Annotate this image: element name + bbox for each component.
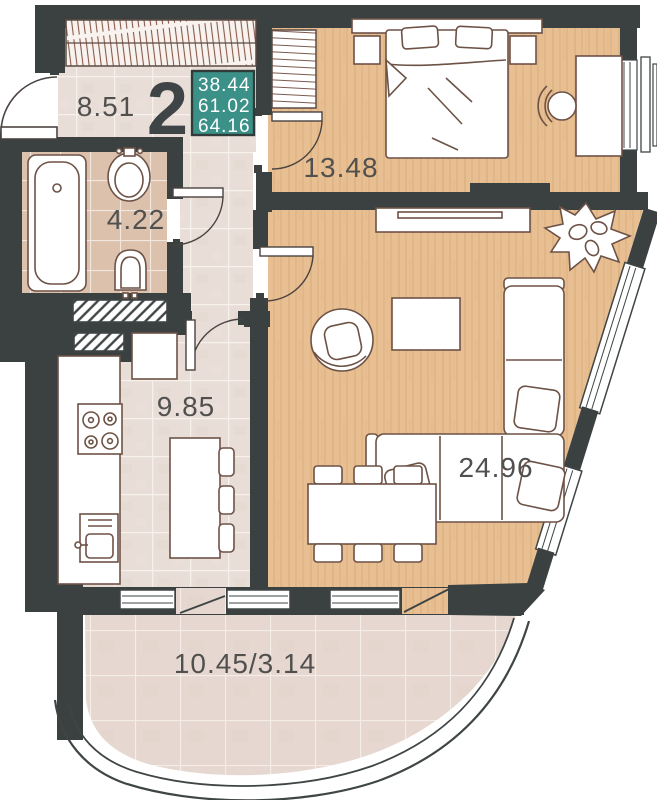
pillow — [455, 26, 492, 49]
total-area-value: 64.16 — [198, 116, 251, 137]
rooms-count-label: 2 — [147, 67, 188, 150]
wall-kitchen-living-divider — [250, 298, 268, 612]
bar-stool — [219, 524, 234, 552]
bathtub-drain — [53, 184, 61, 192]
bedroom-area-label: 13.48 — [303, 152, 378, 183]
dining-table — [308, 484, 436, 544]
wall-divider-step — [470, 183, 550, 210]
nightstand-right — [510, 36, 536, 64]
bed — [386, 26, 508, 158]
bedroom-wardrobe — [272, 30, 316, 108]
desk — [576, 56, 622, 156]
balcony-floor — [85, 615, 516, 775]
bar-stool — [219, 448, 234, 476]
floor-plan-page: 8.51 4.22 9.85 13.48 24.96 10.45/3.14 2 … — [0, 0, 657, 800]
bathtub — [28, 155, 86, 291]
dining-chair — [354, 466, 382, 484]
entrance-door — [1, 77, 57, 139]
kitchen-area-label: 9.85 — [157, 391, 216, 422]
wall-balcony-left — [57, 558, 83, 740]
area-summary-badge: 38.44 61.02 64.16 — [192, 71, 254, 137]
kitchen-island — [170, 438, 234, 558]
stove — [78, 404, 122, 454]
hallway-wardrobe — [66, 20, 256, 66]
dining-chair — [354, 544, 382, 562]
kitchen-window-2 — [227, 590, 290, 609]
dining-chair — [314, 544, 342, 562]
wall-corner-entry — [35, 5, 65, 73]
balcony-area-label: 10.45/3.14 — [174, 648, 316, 679]
hallway-area-label: 8.51 — [77, 91, 136, 122]
wall-bedroom-left-upper — [256, 18, 272, 115]
dining-set — [308, 466, 436, 562]
dining-chair — [314, 466, 342, 484]
tv-console — [376, 208, 530, 232]
dining-chair — [394, 544, 422, 562]
wall-bathroom-right-lower — [167, 242, 183, 295]
ventilation-duct-2 — [74, 333, 124, 351]
floor-plan: 8.51 4.22 9.85 13.48 24.96 10.45/3.14 2 … — [0, 0, 657, 800]
wall-kitchen-outer — [25, 350, 58, 612]
bedroom-window — [618, 57, 657, 152]
fridge — [132, 333, 177, 379]
ventilation-duct-1 — [73, 300, 167, 322]
tv — [398, 212, 502, 218]
door-frame-tick — [238, 311, 250, 325]
sofa-cushion — [513, 385, 560, 432]
door-frame-tick — [254, 165, 262, 173]
kitchen-balcony-doorway — [176, 588, 226, 614]
armchair — [311, 309, 373, 371]
door-frame-tick — [256, 293, 264, 301]
living-window — [330, 590, 400, 609]
kitchen-sink — [75, 514, 118, 562]
bar-stool — [219, 486, 234, 514]
coffee-table — [392, 298, 460, 350]
toilet — [115, 250, 146, 298]
kitchen-window-1 — [120, 590, 175, 609]
apartment-area-value: 61.02 — [198, 96, 251, 117]
bathroom-area-label: 4.22 — [107, 204, 166, 235]
living-room-area-label: 24.96 — [458, 452, 533, 483]
door-frame-tick — [50, 66, 59, 75]
living-area-value: 38.44 — [198, 75, 251, 96]
dining-chair — [394, 466, 422, 484]
nightstand-left — [354, 36, 380, 64]
pillow — [401, 26, 438, 49]
